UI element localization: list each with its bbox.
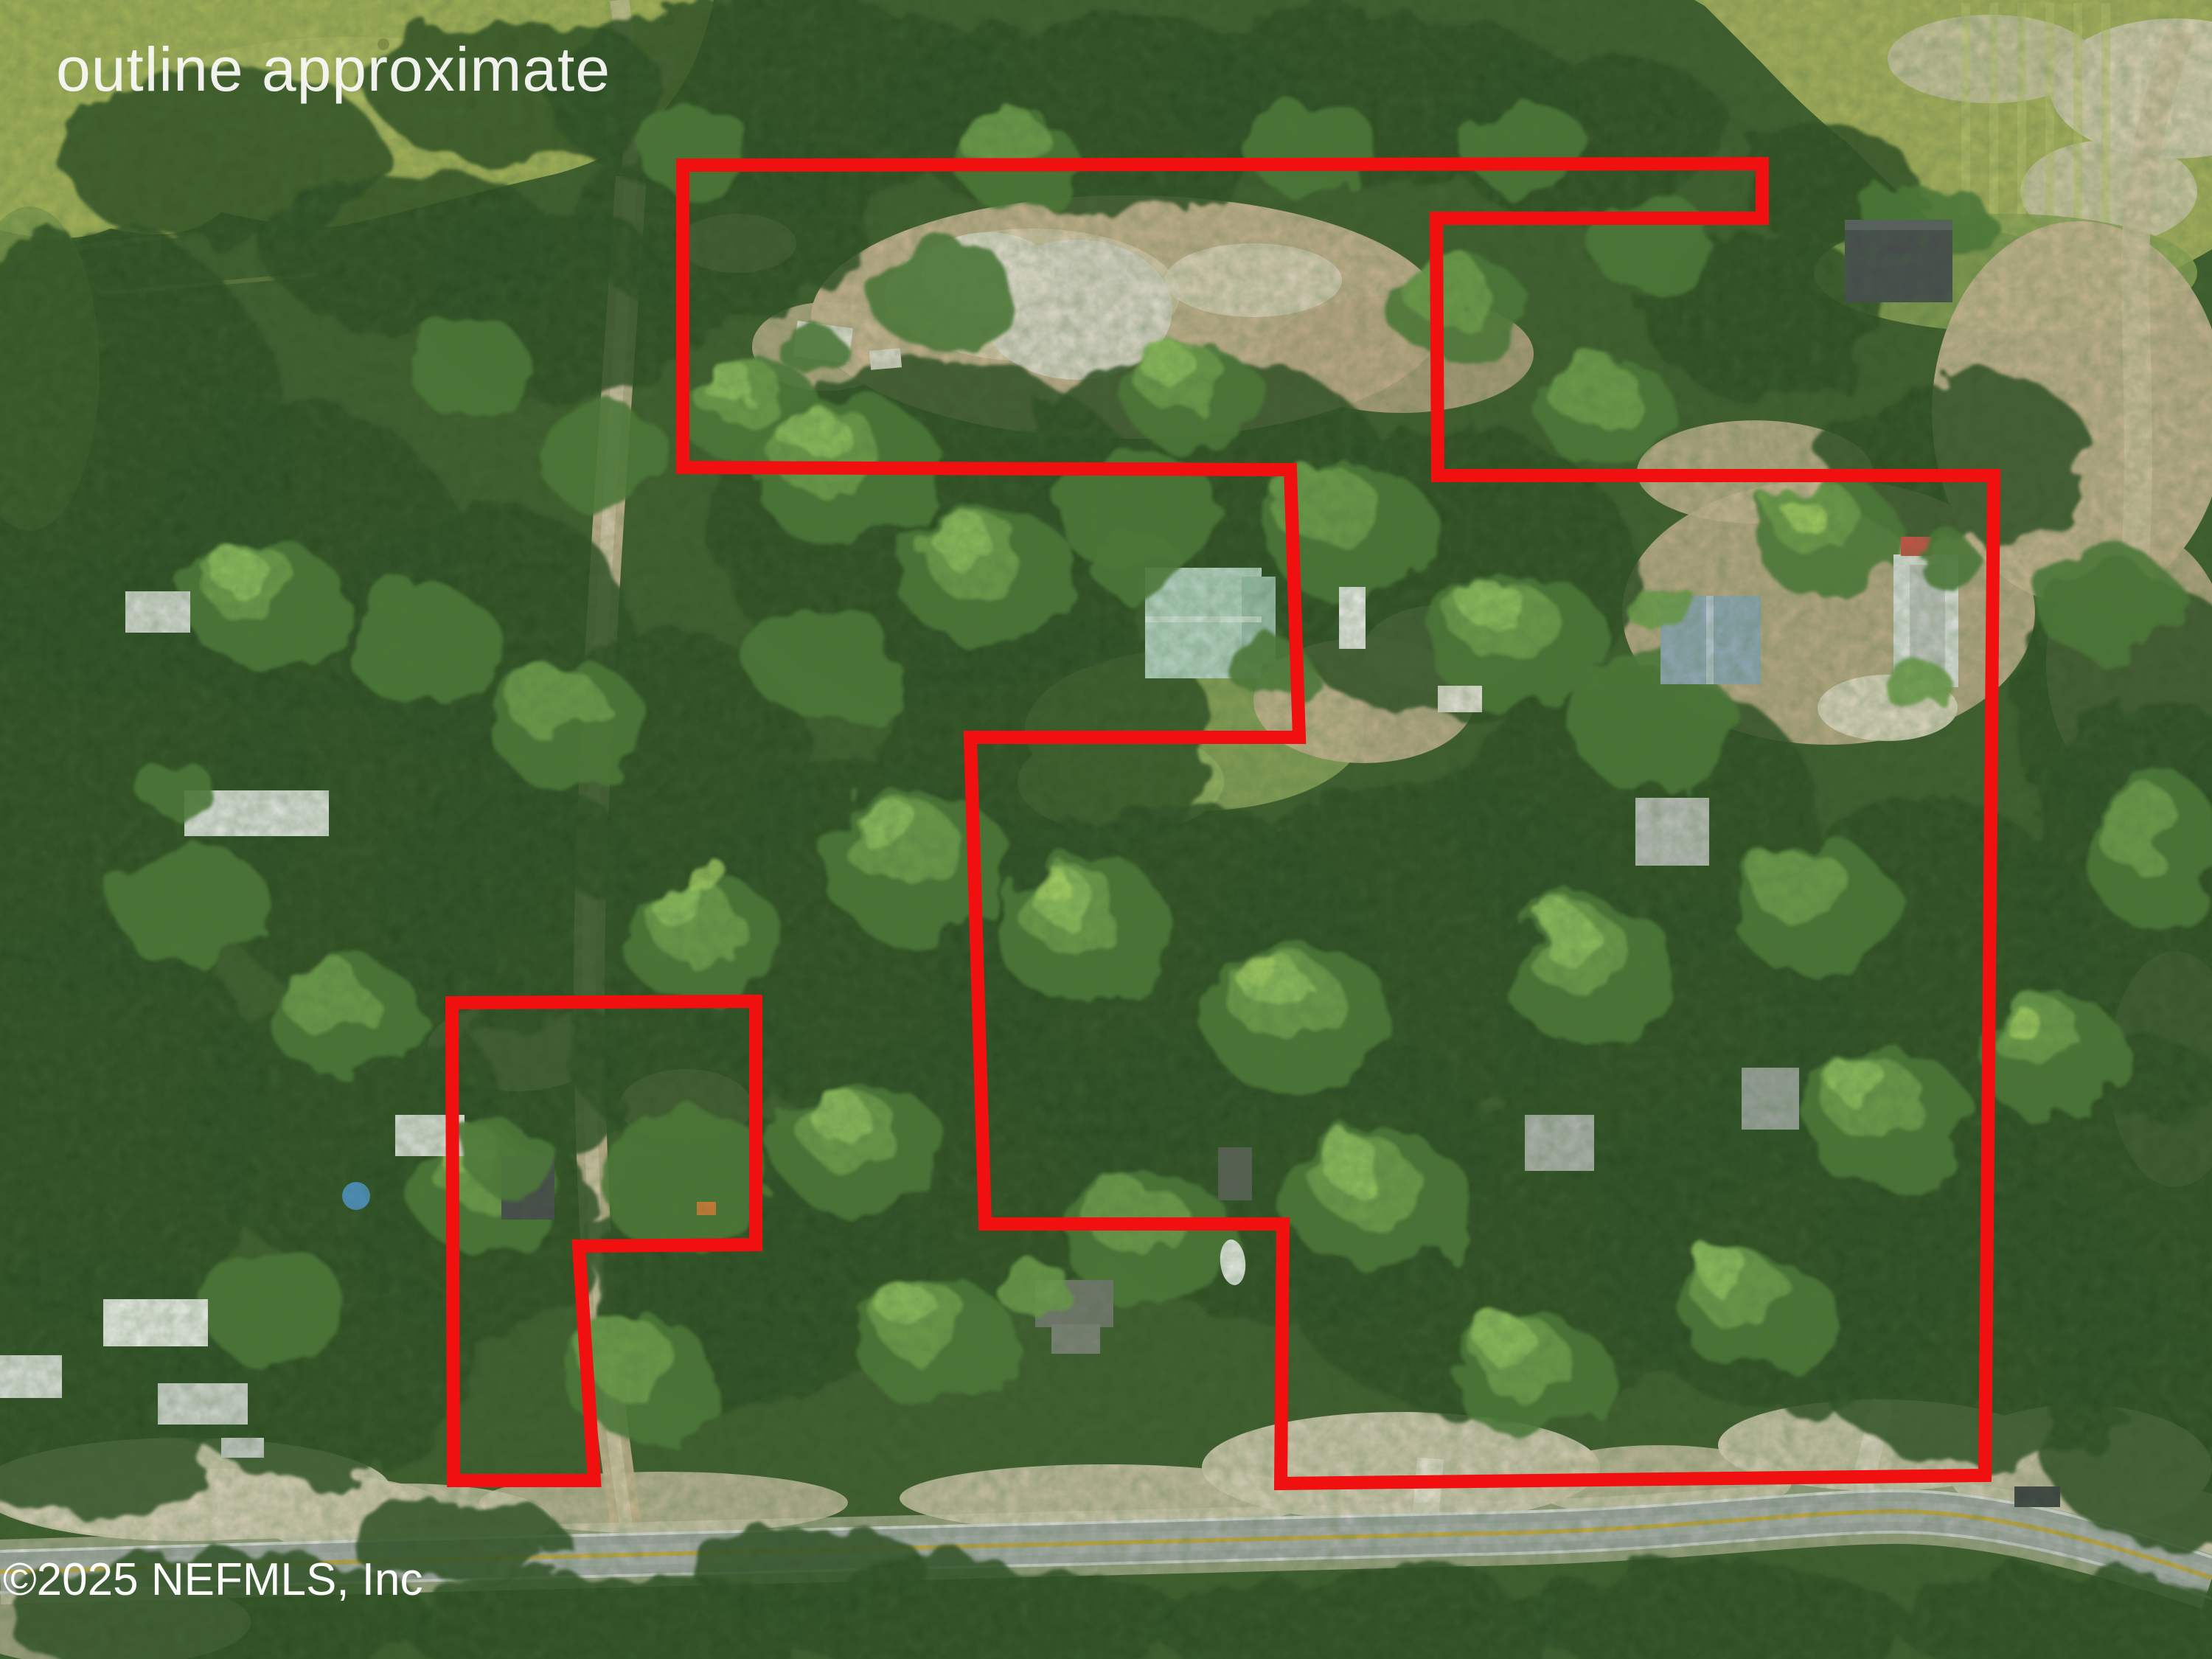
foliage-texture-overlay — [0, 0, 2212, 1659]
outline-approximate-watermark: outline approximate — [56, 38, 611, 100]
aerial-photo: outline approximate ©2025 NEFMLS, Inc — [0, 0, 2212, 1659]
aerial-scene — [0, 0, 2212, 1659]
copyright-watermark: ©2025 NEFMLS, Inc — [3, 1557, 422, 1603]
